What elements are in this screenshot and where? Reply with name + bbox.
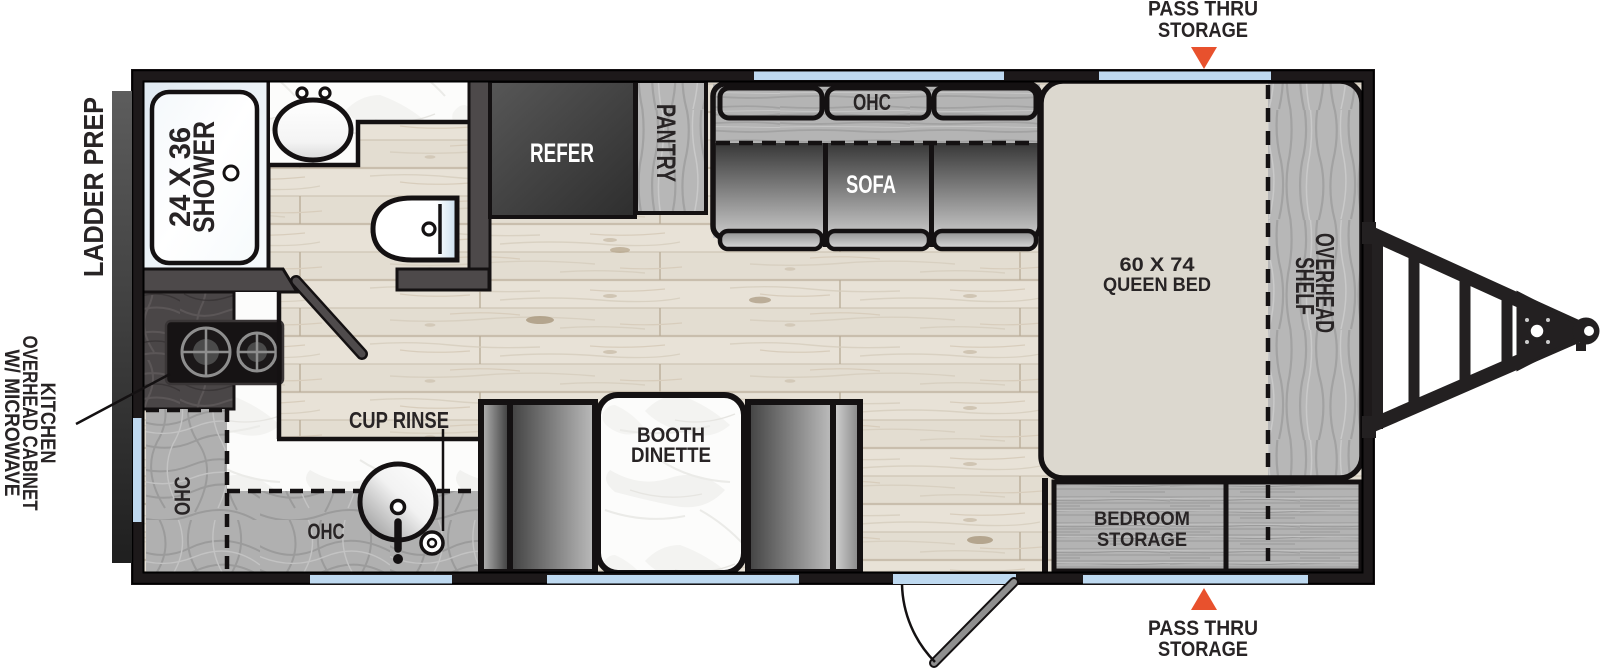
- svg-text:DINETTE: DINETTE: [631, 444, 711, 467]
- svg-text:OHC: OHC: [853, 89, 891, 115]
- svg-text:QUEEN BED: QUEEN BED: [1103, 275, 1211, 296]
- svg-text:SOFA: SOFA: [846, 171, 896, 199]
- svg-text:OHC: OHC: [170, 476, 195, 515]
- svg-text:STORAGE: STORAGE: [1158, 638, 1248, 661]
- svg-text:LADDER PREP: LADDER PREP: [78, 97, 109, 277]
- svg-text:OHC: OHC: [308, 519, 345, 544]
- svg-text:SHELF: SHELF: [1290, 257, 1320, 315]
- svg-text:60 X 74: 60 X 74: [1120, 255, 1195, 276]
- svg-text:PASS THRU: PASS THRU: [1148, 0, 1258, 21]
- svg-text:BEDROOM: BEDROOM: [1094, 509, 1190, 530]
- svg-text:STORAGE: STORAGE: [1097, 530, 1187, 551]
- svg-text:REFER: REFER: [530, 138, 594, 168]
- svg-text:PANTRY: PANTRY: [651, 104, 681, 182]
- svg-text:PASS THRU: PASS THRU: [1148, 617, 1258, 640]
- svg-text:STORAGE: STORAGE: [1158, 19, 1248, 42]
- svg-text:CUP RINSE: CUP RINSE: [349, 407, 449, 433]
- svg-text:SHOWER: SHOWER: [188, 121, 221, 233]
- svg-text:W/ MICROWAVE: W/ MICROWAVE: [0, 350, 23, 497]
